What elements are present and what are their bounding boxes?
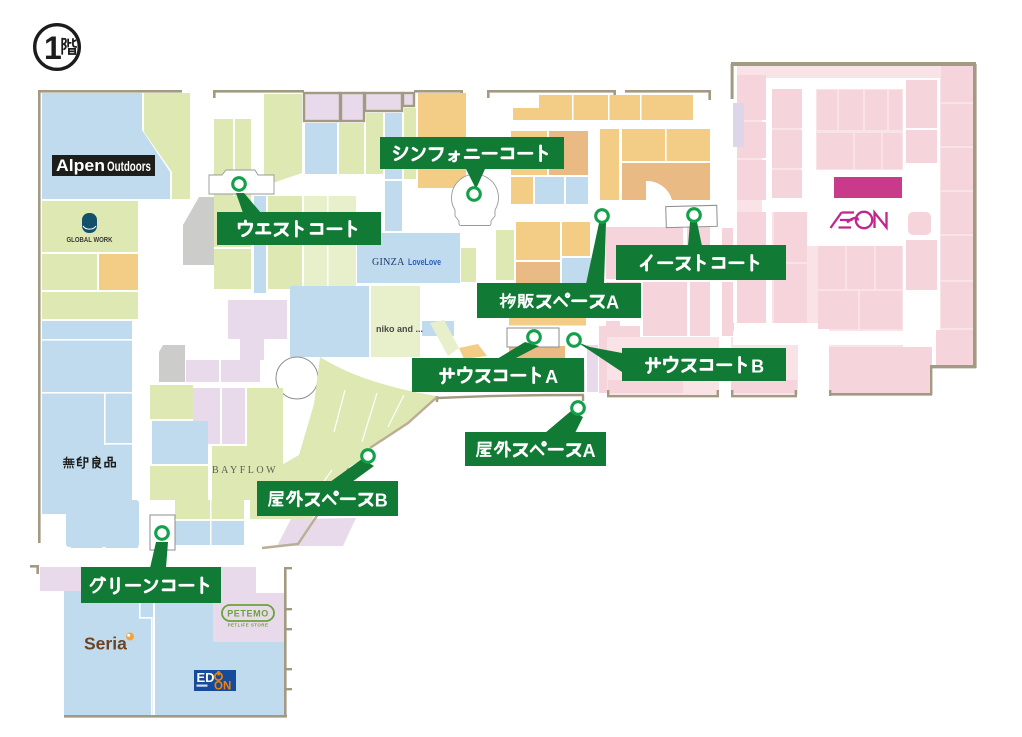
svg-text:GLOBAL WORK: GLOBAL WORK: [67, 237, 113, 244]
svg-text:GINZA: GINZA: [372, 257, 405, 268]
svg-text:niko and ...: niko and ...: [376, 324, 423, 334]
svg-text:ED: ED: [197, 670, 215, 685]
svg-text:PETLIFE STORE: PETLIFE STORE: [228, 623, 269, 628]
svg-text:ON: ON: [214, 681, 231, 693]
svg-text:A: A: [606, 292, 619, 312]
svg-text:A: A: [545, 367, 558, 387]
svg-text:Seria: Seria: [84, 634, 127, 654]
svg-text:BAYFLOW: BAYFLOW: [212, 465, 278, 476]
svg-text:B: B: [375, 490, 388, 510]
svg-text:1: 1: [44, 30, 62, 66]
svg-text:Alpen: Alpen: [56, 156, 105, 175]
svg-text:PETEMO: PETEMO: [227, 609, 269, 619]
svg-text:Outdoors: Outdoors: [107, 159, 151, 174]
svg-text:LoveLove: LoveLove: [408, 257, 441, 267]
svg-text:B: B: [751, 356, 764, 376]
svg-text:A: A: [583, 441, 596, 461]
